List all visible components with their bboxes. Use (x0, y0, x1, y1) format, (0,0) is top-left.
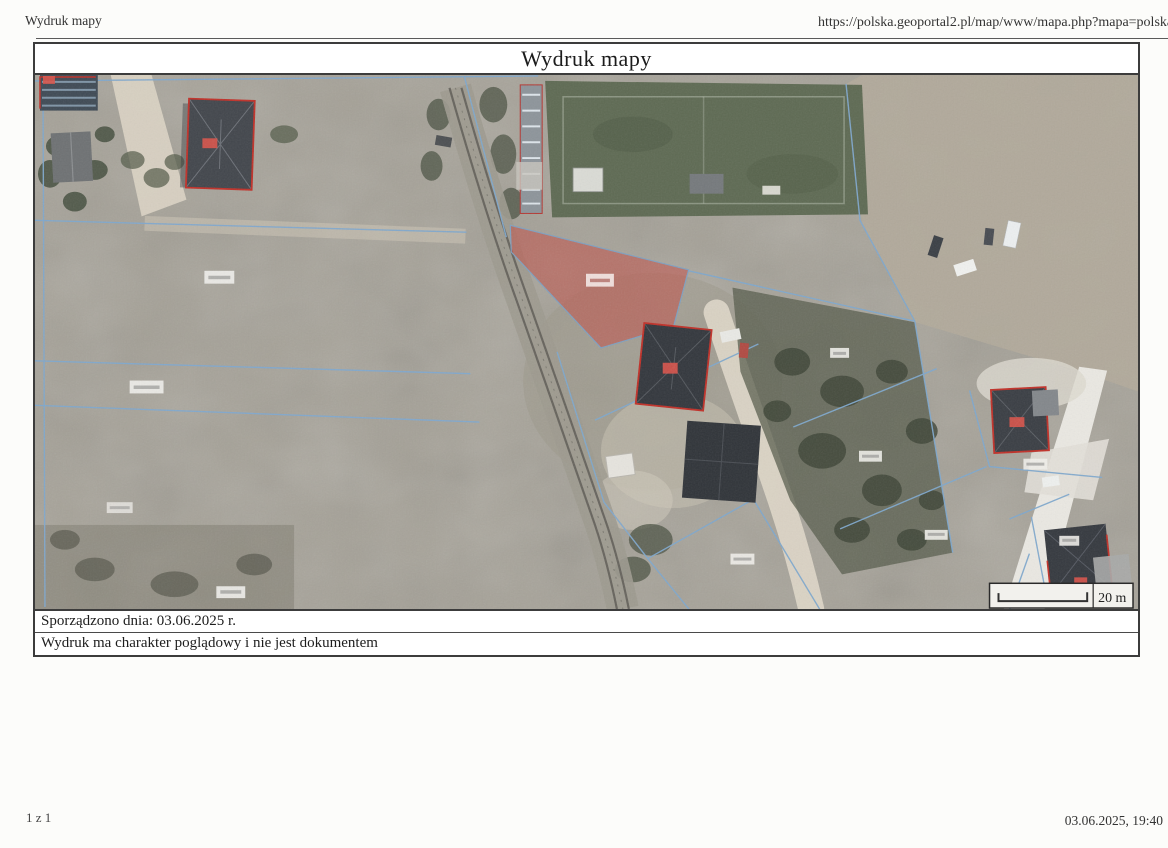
note-disclaimer: Wydruk ma charakter poglądowy i nie jest… (35, 633, 1138, 654)
print-footer-page-number: 1 z 1 (26, 810, 51, 826)
print-header-url: https://polska.geoportal2.pl/map/www/map… (818, 15, 1168, 31)
aerial-map-graphic: 20 m (35, 75, 1138, 609)
header-rule (36, 38, 1168, 39)
scale-bar: 20 m (990, 583, 1133, 608)
print-footer-datetime: 03.06.2025, 19:40 (1065, 813, 1163, 829)
scale-bar-label: 20 m (1098, 591, 1126, 606)
note-date: Sporządzono dnia: 03.06.2025 r. (35, 611, 1138, 633)
map-notes: Sporządzono dnia: 03.06.2025 r. Wydruk m… (35, 609, 1138, 654)
aerial-map: 20 m (35, 75, 1138, 609)
print-header-title: Wydruk mapy (25, 13, 102, 29)
map-frame: Wydruk mapy (33, 42, 1140, 657)
map-title: Wydruk mapy (35, 44, 1138, 75)
photo-grain (35, 75, 1138, 609)
